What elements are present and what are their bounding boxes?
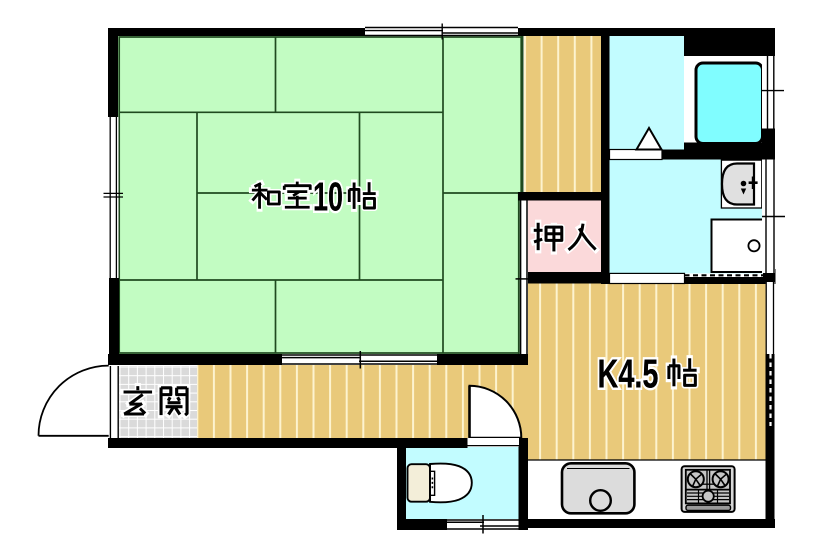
svg-text:K4.5: K4.5 bbox=[598, 351, 659, 397]
svg-text:10: 10 bbox=[313, 173, 343, 219]
